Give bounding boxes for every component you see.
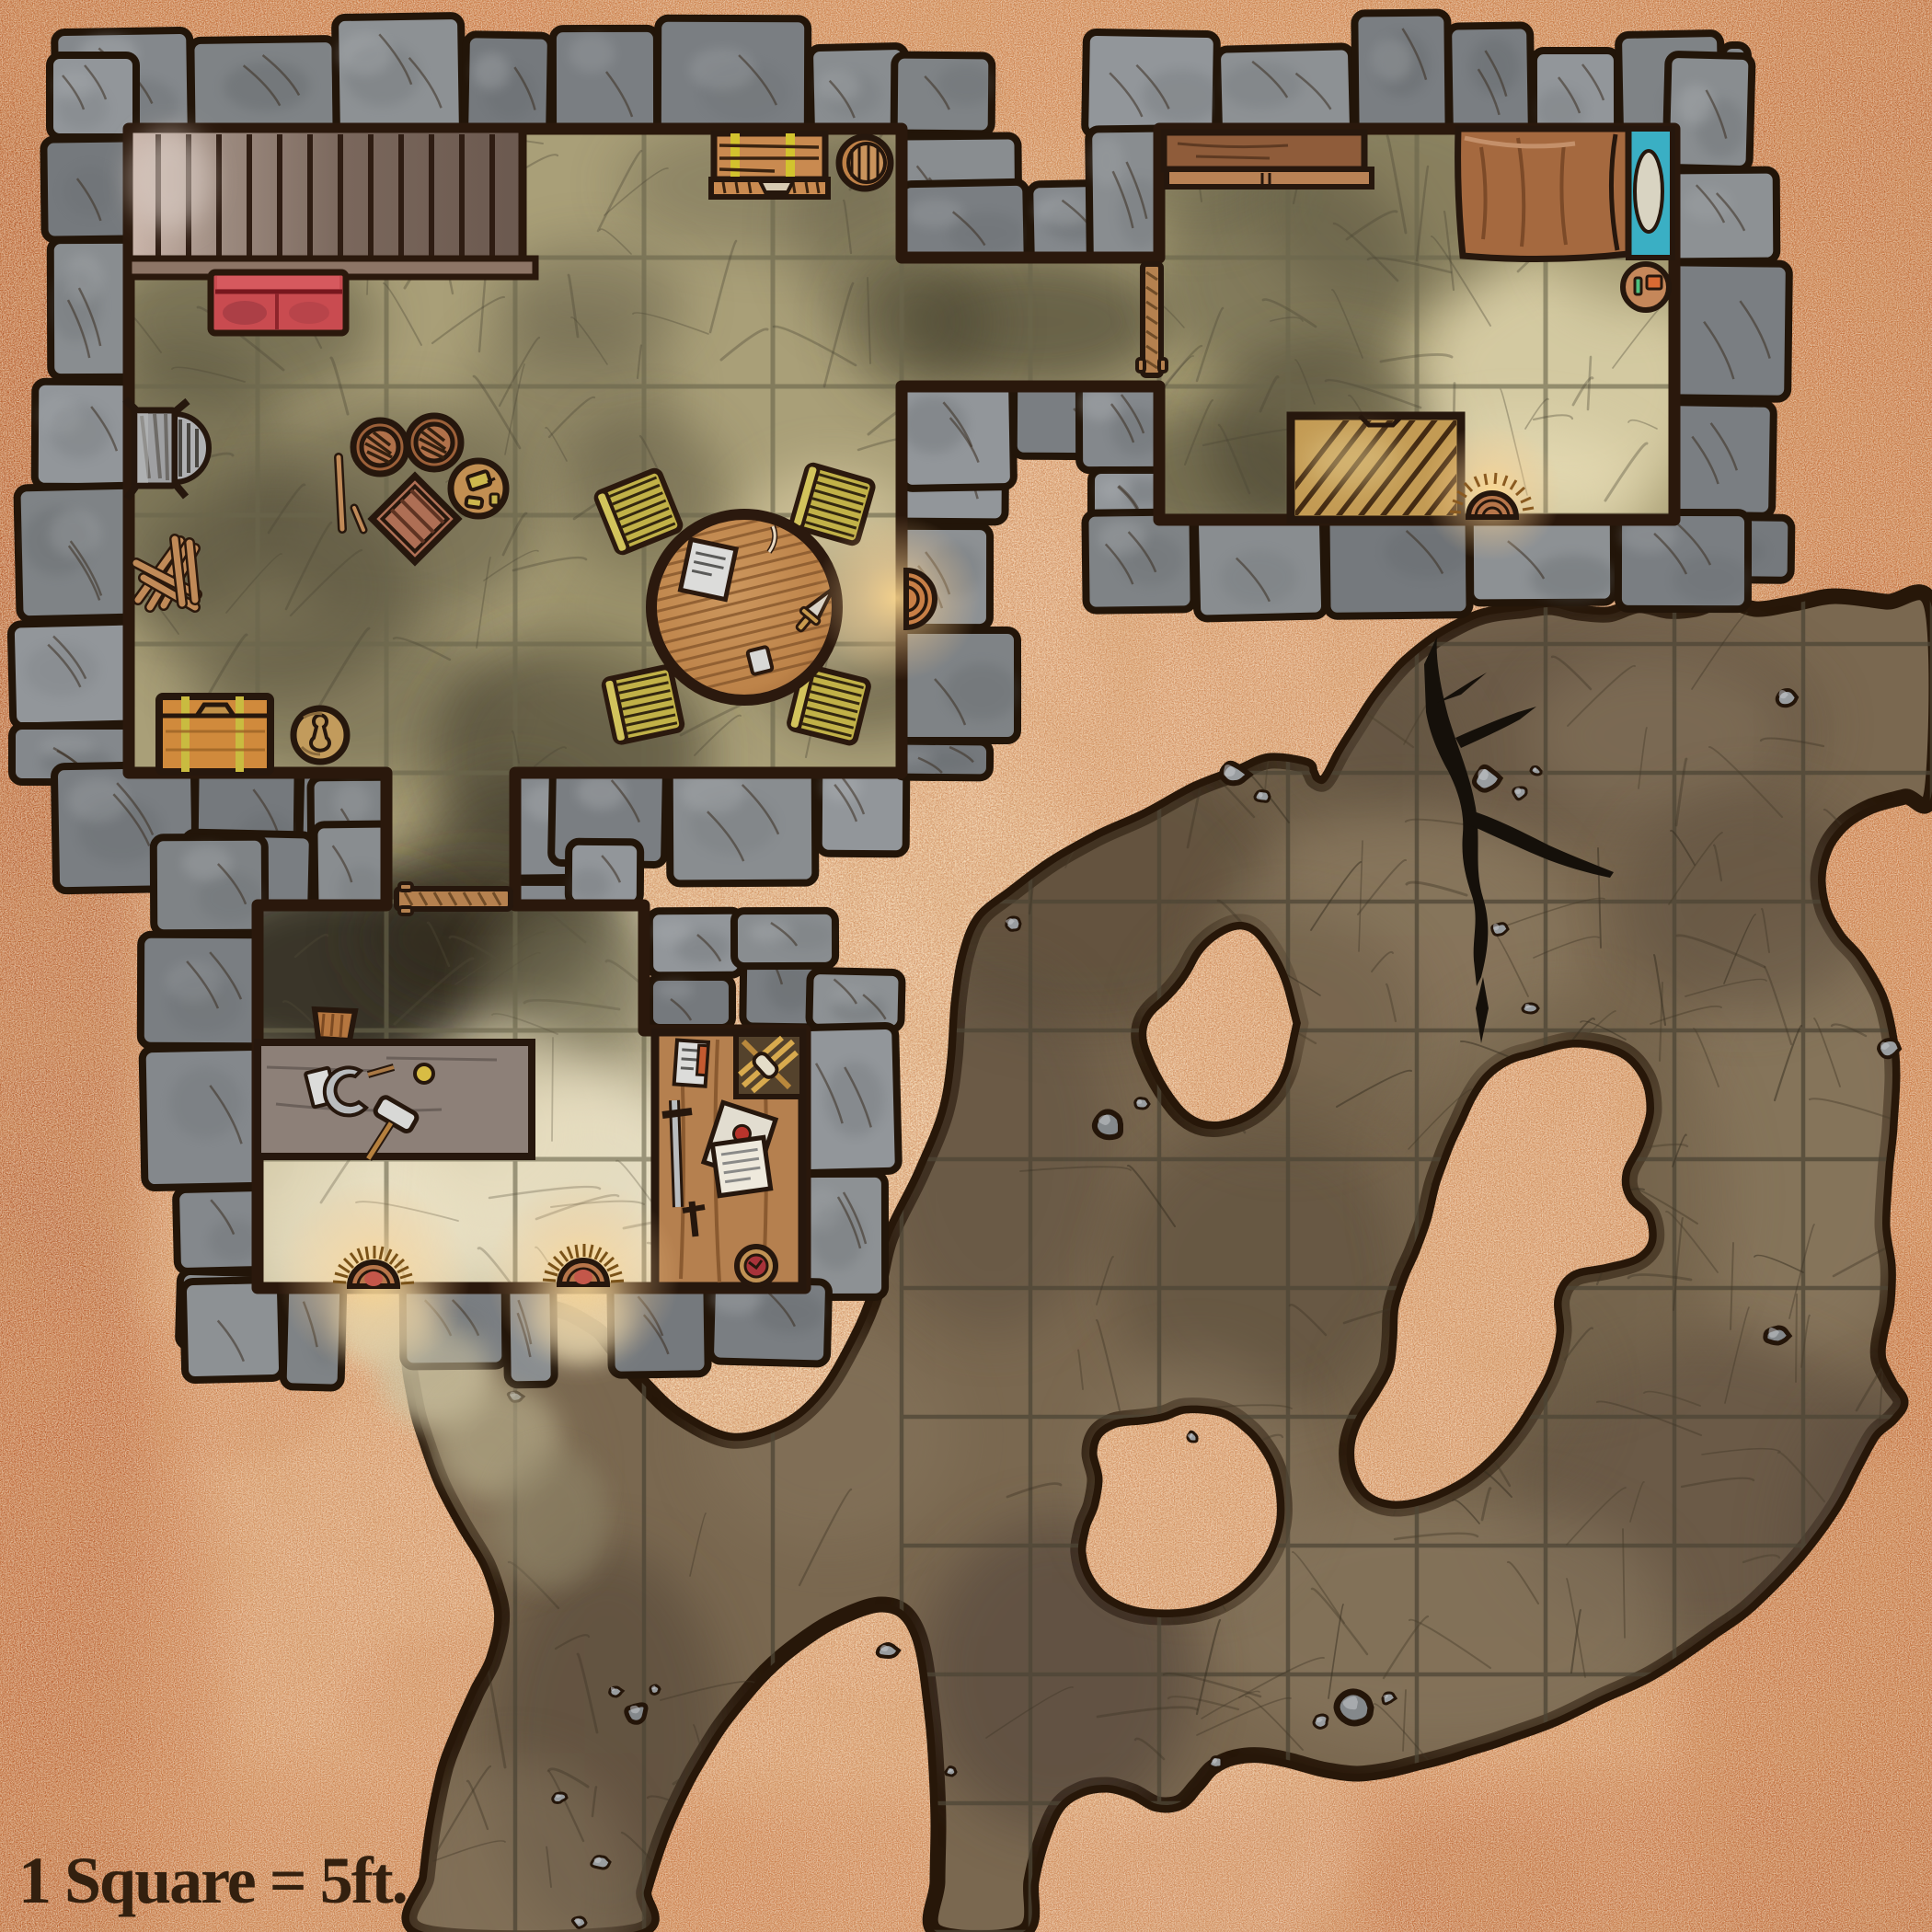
svg-text:1 Square = 5ft.: 1 Square = 5ft. bbox=[18, 1844, 407, 1917]
